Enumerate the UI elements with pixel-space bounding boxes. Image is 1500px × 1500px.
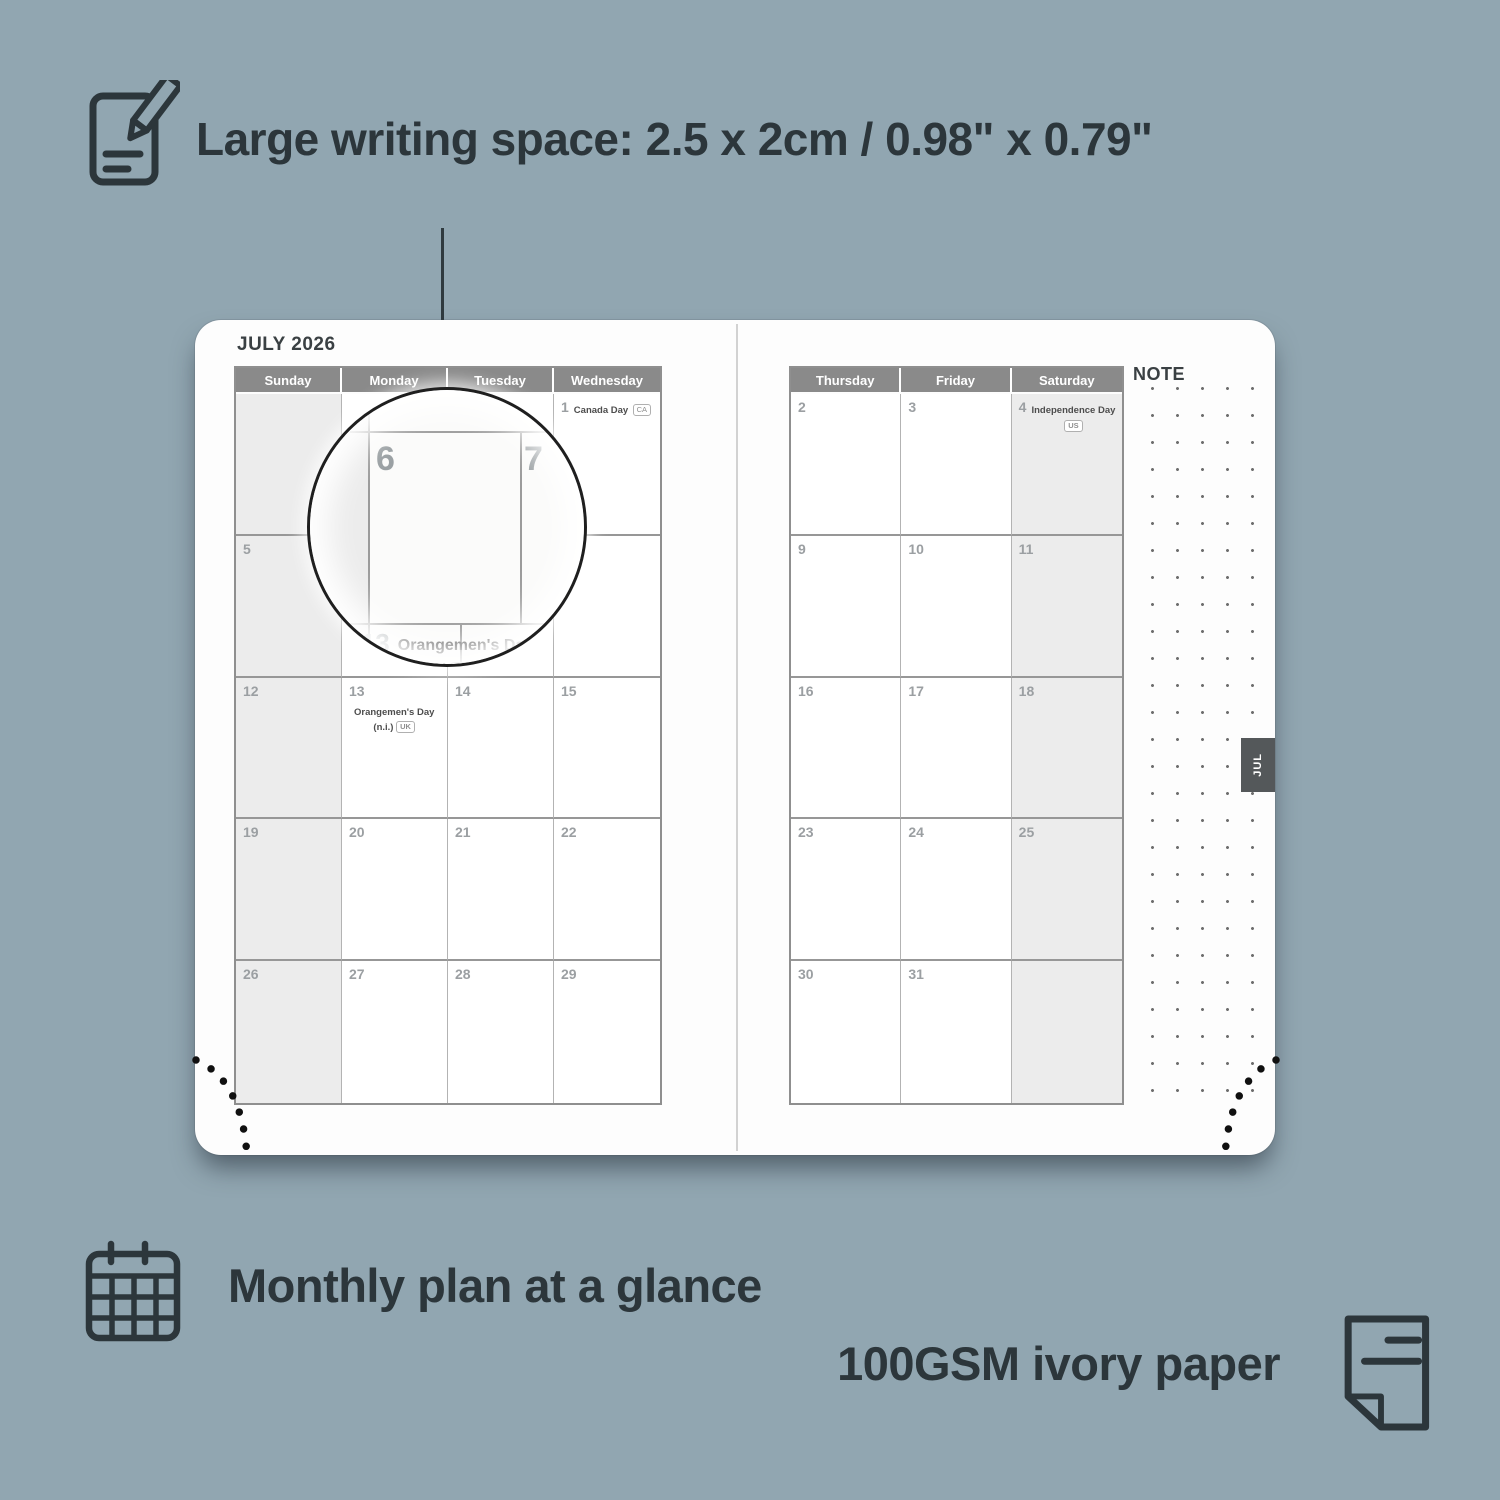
holiday-block: Orangemen's Day(n.i.) UK [354, 701, 434, 735]
holiday-label: Orangemen's Day [354, 707, 434, 718]
magnified-day-13: 13 [361, 628, 390, 658]
magnifier-circle: 6 7 13Orangemen's Day (n.i.) UK [307, 387, 587, 667]
calendar-cell-14: 14 [448, 678, 554, 820]
calendar-cell-12: 12 [236, 678, 342, 820]
calendar-cell-31: 31 [901, 961, 1011, 1103]
day-header-saturday: Saturday [1012, 368, 1122, 394]
day-header-wednesday: Wednesday [554, 368, 660, 394]
day-number: 30 [798, 966, 814, 982]
calendar-cell-28: 28 [448, 961, 554, 1103]
calendar-cell-27: 27 [342, 961, 448, 1103]
day-number: 14 [455, 683, 471, 699]
day-number: 16 [798, 683, 814, 699]
calendar-grid-right: ThursdayFridaySaturday234Independence Da… [789, 366, 1124, 1105]
calendar-cell-10: 10 [901, 536, 1011, 678]
country-badge: US [1064, 420, 1082, 432]
book-spine [736, 324, 738, 1151]
day-number: 31 [908, 966, 924, 982]
paper-sheet-icon [1322, 1312, 1440, 1434]
day-number: 23 [798, 824, 814, 840]
holiday-label: Canada Day [574, 405, 628, 416]
feature-monthly-label: Monthly plan at a glance [228, 1258, 762, 1313]
holiday-label: Independence Day [1031, 405, 1115, 416]
calendar-cell-30: 30 [791, 961, 901, 1103]
magnified-day-7: 7 [524, 440, 543, 479]
day-number: 29 [561, 966, 577, 982]
feature-writing-space-label: Large writing space: 2.5 x 2cm / 0.98" x… [196, 112, 1152, 166]
calendar-cell-20: 20 [342, 819, 448, 961]
day-number: 24 [908, 824, 924, 840]
calendar-cell-29: 29 [554, 961, 660, 1103]
day-number: 5 [243, 541, 251, 557]
day-number: 3 [908, 399, 916, 415]
day-number: 12 [243, 683, 259, 699]
month-index-tab: JUL [1241, 738, 1275, 792]
day-number: 2 [798, 399, 806, 415]
calendar-cell-21: 21 [448, 819, 554, 961]
country-badge: UK [396, 721, 415, 733]
holiday-block: Canada Day CA [574, 399, 651, 420]
day-number: 18 [1019, 683, 1035, 699]
day-header-friday: Friday [901, 368, 1011, 394]
calendar-cell-19: 19 [236, 819, 342, 961]
calendar-cell-17: 17 [901, 678, 1011, 820]
notepad-pencil-icon [88, 80, 180, 188]
day-number: 15 [561, 683, 577, 699]
day-number: 21 [455, 824, 471, 840]
calendar-cell-25: 25 [1012, 819, 1122, 961]
calendar-cell-empty [1012, 961, 1122, 1103]
day-number: 27 [349, 966, 365, 982]
day-number: 26 [243, 966, 259, 982]
day-number: 17 [908, 683, 924, 699]
calendar-cell-11: 11 [1012, 536, 1122, 678]
stitch-dots-bottom-left [190, 1052, 260, 1164]
day-number: 25 [1019, 824, 1035, 840]
stitch-dots-bottom-right [1212, 1052, 1282, 1164]
day-number: 10 [908, 541, 924, 557]
calendar-cell-24: 24 [901, 819, 1011, 961]
note-dot-grid [1132, 366, 1258, 1106]
holiday-block: Independence DayUS [1031, 399, 1115, 433]
day-number: 20 [349, 824, 365, 840]
holiday-line2: US [1031, 420, 1115, 433]
holiday-line2: (n.i.) UK [354, 721, 434, 734]
calendar-cell-23: 23 [791, 819, 901, 961]
day-number: 28 [455, 966, 471, 982]
note-label: NOTE [1131, 362, 1195, 387]
magnified-cell-bottom-border [340, 623, 566, 625]
day-header-thursday: Thursday [791, 368, 901, 394]
country-badge: CA [633, 404, 651, 416]
calendar-cell-13: 13Orangemen's Day(n.i.) UK [342, 678, 448, 820]
calendar-grid-icon [83, 1240, 183, 1342]
magnified-day-6: 6 [376, 440, 395, 479]
calendar-cell-18: 18 [1012, 678, 1122, 820]
magnified-country-badge: UK [451, 662, 475, 664]
calendar-cell-3: 3 [901, 394, 1011, 536]
day-number: 4 [1019, 399, 1027, 415]
day-number: 11 [1019, 541, 1034, 557]
day-number: 22 [561, 824, 577, 840]
magnified-holiday-name: Orangemen's Day [398, 637, 533, 654]
calendar-cell-22: 22 [554, 819, 660, 961]
month-title: JULY 2026 [237, 334, 336, 356]
magnified-cell-right-border [520, 431, 522, 623]
day-number: 19 [243, 824, 259, 840]
calendar-cell-15: 15 [554, 678, 660, 820]
calendar-cell-2: 2 [791, 394, 901, 536]
magnified-cell-top-border [350, 431, 566, 433]
magnified-holiday-row: 13Orangemen's Day (n.i.) UK [310, 628, 584, 664]
calendar-cell-9: 9 [791, 536, 901, 678]
day-number: 13 [349, 683, 365, 699]
calendar-cell-16: 16 [791, 678, 901, 820]
magnified-holiday-suffix: (n.i.) [418, 660, 448, 664]
day-number: 9 [798, 541, 806, 557]
day-number: 1 [561, 399, 569, 415]
month-tab-label: JUL [1252, 753, 1264, 777]
feature-paper-label: 100GSM ivory paper [837, 1336, 1280, 1391]
calendar-cell-4: 4Independence DayUS [1012, 394, 1122, 536]
